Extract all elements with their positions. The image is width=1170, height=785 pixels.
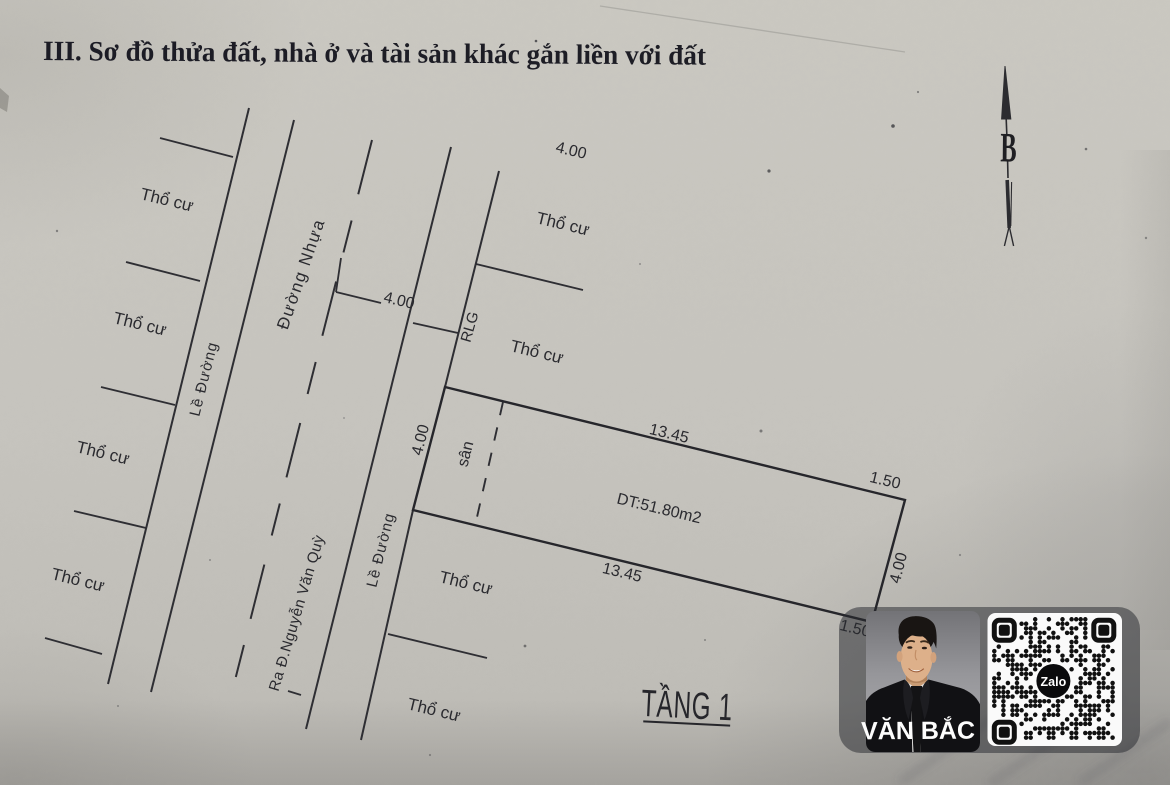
svg-text:Zalo: Zalo bbox=[1041, 675, 1067, 689]
svg-text:VĂN BẮC: VĂN BẮC bbox=[861, 715, 975, 746]
